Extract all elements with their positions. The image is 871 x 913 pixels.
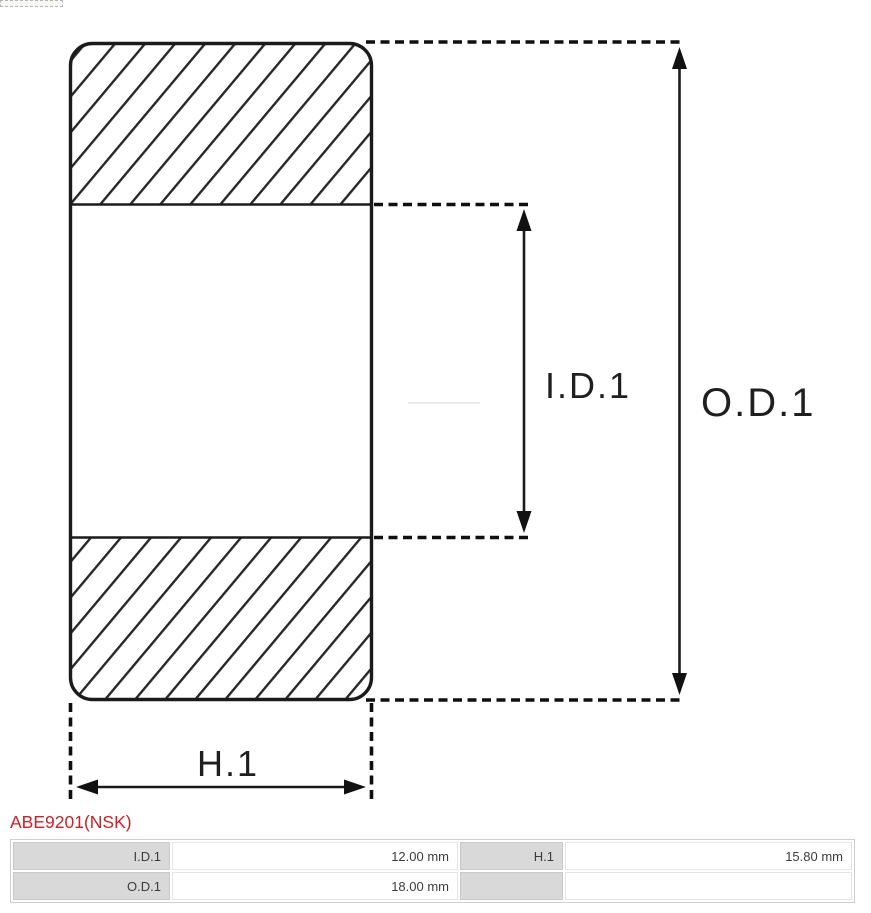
- spec-table-row: I.D.1 12.00 mm H.1 15.80 mm: [13, 842, 852, 870]
- id1-arrowhead-up-icon: [517, 209, 532, 231]
- part-number-title: ABE9201(NSK): [10, 811, 132, 833]
- id1-arrowhead-down-icon: [517, 511, 532, 533]
- bearing-ring-shape: [71, 44, 372, 700]
- spec-table: I.D.1 12.00 mm H.1 15.80 mm O.D.1 18.00 …: [10, 839, 855, 903]
- h1-arrowhead-left-icon: [76, 780, 98, 795]
- od1-dimension: O.D.1: [672, 47, 815, 695]
- top-hatched-band: [71, 44, 372, 205]
- h1-arrowhead-right-icon: [344, 780, 366, 795]
- spec-value-od1: 18.00 mm: [172, 872, 458, 900]
- id1-dimension: I.D.1: [517, 209, 632, 533]
- page-canvas: I.D.1 O.D.1 H.1 ABE9201(NSK) I.D.1: [0, 0, 871, 913]
- od1-arrowhead-down-icon: [672, 673, 687, 695]
- spec-label-h1: H.1: [460, 842, 563, 870]
- bottom-hatched-band: [71, 538, 372, 700]
- h1-dimension: H.1: [76, 743, 366, 795]
- spec-label-id1: I.D.1: [13, 842, 170, 870]
- spec-value-h1: 15.80 mm: [565, 842, 852, 870]
- spec-table-row: O.D.1 18.00 mm: [13, 872, 852, 900]
- spec-value-id1: 12.00 mm: [172, 842, 458, 870]
- spec-value-empty: [565, 872, 852, 900]
- spec-label-od1: O.D.1: [13, 872, 170, 900]
- od1-arrowhead-up-icon: [672, 47, 687, 69]
- od1-label: O.D.1: [701, 381, 815, 425]
- spec-label-empty: [460, 872, 563, 900]
- bearing-cross-section-diagram: I.D.1 O.D.1 H.1: [0, 0, 871, 808]
- id1-label: I.D.1: [545, 365, 631, 406]
- h1-label: H.1: [197, 743, 259, 784]
